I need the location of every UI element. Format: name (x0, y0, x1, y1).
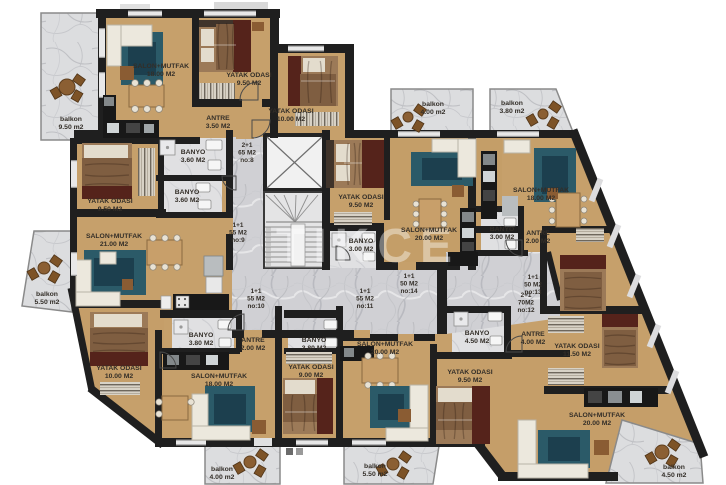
svg-text:4.00 M2: 4.00 M2 (521, 339, 546, 346)
svg-text:YATAK ODASI: YATAK ODASI (87, 198, 132, 205)
svg-text:3.00 M2: 3.00 M2 (349, 246, 374, 253)
svg-text:18.00 M2: 18.00 M2 (205, 381, 234, 388)
svg-text:2+1: 2+1 (242, 142, 253, 149)
svg-text:YATAK ODASI: YATAK ODASI (447, 369, 492, 376)
svg-text:SALON+MUTFAK: SALON+MUTFAK (133, 63, 189, 70)
svg-text:4.50 m2: 4.50 m2 (662, 472, 687, 479)
svg-text:SALON+MUTFAK: SALON+MUTFAK (569, 412, 625, 419)
svg-text:no:11: no:11 (357, 303, 374, 310)
svg-text:YATAK ODASI: YATAK ODASI (96, 365, 141, 372)
svg-text:3.80 M2: 3.80 M2 (302, 345, 327, 352)
svg-text:9.50 M2: 9.50 M2 (349, 202, 374, 209)
svg-text:YATAK ODASI: YATAK ODASI (554, 343, 599, 350)
svg-text:5.50 m2: 5.50 m2 (35, 299, 60, 306)
svg-text:2+1: 2+1 (521, 292, 532, 299)
svg-text:70M2: 70M2 (518, 300, 534, 307)
svg-text:SALON+MUTFAK: SALON+MUTFAK (401, 227, 457, 234)
svg-text:ANTRE: ANTRE (241, 337, 265, 344)
svg-text:3.80 M2: 3.80 M2 (189, 340, 214, 347)
svg-text:55 M2: 55 M2 (356, 296, 374, 303)
svg-text:9.50 m2: 9.50 m2 (59, 124, 84, 131)
svg-text:1+1: 1+1 (404, 273, 415, 280)
svg-text:YATAK ODASI: YATAK ODASI (288, 364, 333, 371)
svg-text:BANYO: BANYO (181, 149, 206, 156)
svg-text:9.50 M2: 9.50 M2 (237, 80, 262, 87)
svg-text:balkon: balkon (663, 464, 685, 471)
svg-text:55 M2: 55 M2 (247, 296, 265, 303)
svg-text:BANYO: BANYO (175, 189, 200, 196)
svg-text:SALON+MUTFAK: SALON+MUTFAK (513, 187, 569, 194)
svg-text:YATAK ODASI: YATAK ODASI (226, 72, 271, 79)
svg-text:4.00 m2: 4.00 m2 (210, 474, 235, 481)
svg-text:50 M2: 50 M2 (524, 282, 542, 289)
svg-text:3.60 M2: 3.60 M2 (181, 157, 206, 164)
svg-text:ANTRE: ANTRE (206, 115, 230, 122)
svg-text:3.80 m2: 3.80 m2 (500, 108, 525, 115)
svg-text:50 M2: 50 M2 (400, 281, 418, 288)
svg-text:balkon: balkon (211, 466, 233, 473)
svg-text:balkon: balkon (36, 291, 58, 298)
svg-text:1+1: 1+1 (360, 288, 371, 295)
svg-text:3.60 M2: 3.60 M2 (175, 197, 200, 204)
svg-text:SALON+MUTFAK: SALON+MUTFAK (357, 341, 413, 348)
svg-text:9.50 M2: 9.50 M2 (458, 377, 483, 384)
svg-text:balkon: balkon (501, 100, 523, 107)
svg-text:no:12: no:12 (517, 307, 534, 314)
svg-text:1+1: 1+1 (251, 288, 262, 295)
svg-text:YATAK ODASI: YATAK ODASI (338, 194, 383, 201)
svg-text:1+1: 1+1 (233, 222, 244, 229)
svg-text:20.00 M2: 20.00 M2 (371, 349, 400, 356)
svg-text:SALON+MUTFAK: SALON+MUTFAK (191, 373, 247, 380)
svg-text:21.00 M2: 21.00 M2 (100, 241, 129, 248)
svg-text:2.00 M2: 2.00 M2 (526, 238, 551, 245)
svg-text:no:9: no:9 (231, 237, 245, 244)
svg-text:no:14: no:14 (400, 288, 417, 295)
svg-text:9.00 M2: 9.00 M2 (299, 372, 324, 379)
svg-text:no:8: no:8 (240, 157, 254, 164)
svg-text:20.00 M2: 20.00 M2 (415, 235, 444, 242)
svg-text:balkon: balkon (422, 101, 444, 108)
svg-text:BANYO: BANYO (349, 238, 374, 245)
svg-text:SALON+MUTFAK: SALON+MUTFAK (86, 233, 142, 240)
svg-text:1+1: 1+1 (528, 274, 539, 281)
svg-text:18.00 M2: 18.00 M2 (527, 195, 556, 202)
svg-text:BANYO: BANYO (189, 332, 214, 339)
svg-text:4.50 M2: 4.50 M2 (465, 338, 490, 345)
svg-text:65 M2: 65 M2 (238, 150, 256, 157)
svg-text:18.00 M2: 18.00 M2 (147, 71, 176, 78)
svg-text:4.00 m2: 4.00 m2 (421, 109, 446, 116)
svg-text:balkon: balkon (60, 116, 82, 123)
svg-text:YATAK ODASI: YATAK ODASI (268, 108, 313, 115)
svg-text:BANYO: BANYO (302, 337, 327, 344)
svg-text:BANYO: BANYO (490, 226, 515, 233)
svg-text:20.00 M2: 20.00 M2 (583, 420, 612, 427)
svg-text:BANYO: BANYO (465, 330, 490, 337)
svg-text:3.00 M2: 3.00 M2 (490, 234, 515, 241)
svg-text:3.50 M2: 3.50 M2 (206, 123, 231, 130)
svg-text:5.50 m2: 5.50 m2 (363, 471, 388, 478)
svg-text:9.50 M2: 9.50 M2 (98, 206, 123, 213)
svg-text:11.50 M2: 11.50 M2 (563, 351, 591, 358)
svg-text:55 M2: 55 M2 (229, 230, 247, 237)
svg-text:balkon: balkon (364, 463, 386, 470)
svg-text:ANTRE: ANTRE (526, 230, 550, 237)
svg-text:10.00 M2: 10.00 M2 (105, 373, 134, 380)
svg-text:10.00 M2: 10.00 M2 (277, 116, 306, 123)
svg-text:no:10: no:10 (247, 303, 264, 310)
svg-text:2.00 M2: 2.00 M2 (241, 345, 266, 352)
svg-text:ANTRE: ANTRE (521, 331, 545, 338)
